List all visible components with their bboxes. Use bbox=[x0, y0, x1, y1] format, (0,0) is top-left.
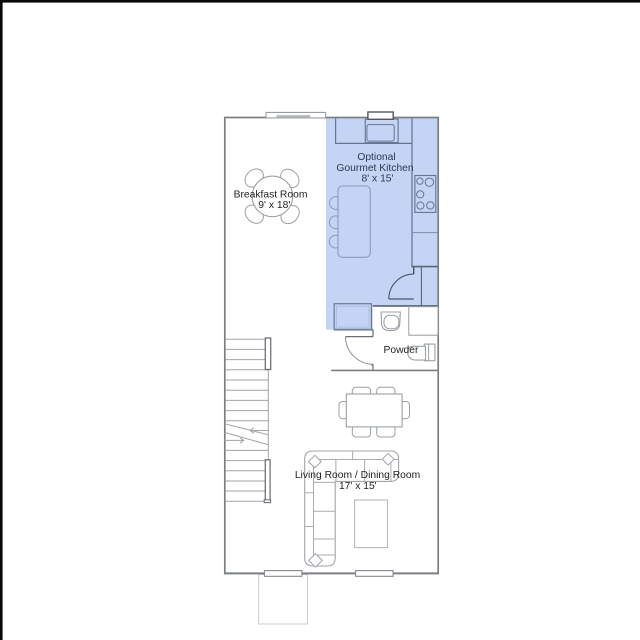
svg-text:Living Room / Dining Room: Living Room / Dining Room bbox=[295, 470, 420, 481]
svg-text:Optional: Optional bbox=[357, 152, 395, 163]
svg-text:8' x 15': 8' x 15' bbox=[362, 173, 394, 184]
svg-text:Powder: Powder bbox=[384, 345, 419, 356]
svg-text:Gourmet Kitchen: Gourmet Kitchen bbox=[336, 163, 414, 174]
svg-text:9' x 18': 9' x 18' bbox=[258, 200, 290, 211]
svg-text:17' x 15': 17' x 15' bbox=[339, 481, 377, 492]
svg-text:Breakfast Room: Breakfast Room bbox=[234, 189, 308, 200]
